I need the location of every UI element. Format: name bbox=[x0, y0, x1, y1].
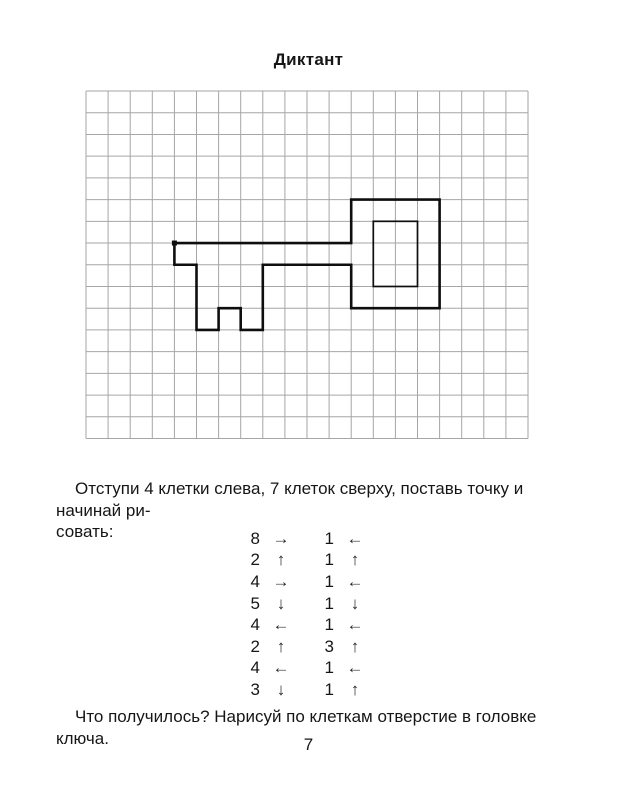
arrow-left-icon: ← bbox=[345, 658, 365, 678]
step-count: 1 bbox=[320, 680, 334, 700]
step-count: 3 bbox=[320, 637, 334, 657]
arrow-down-icon: ↓ bbox=[271, 594, 291, 614]
dictation-step: 4→ bbox=[246, 571, 291, 593]
dictation-step: 8→ bbox=[246, 528, 291, 550]
arrow-up-icon: ↑ bbox=[271, 550, 291, 570]
step-count: 5 bbox=[246, 594, 260, 614]
start-dot bbox=[172, 241, 177, 246]
step-count: 1 bbox=[320, 594, 334, 614]
step-count: 8 bbox=[246, 529, 260, 549]
arrow-left-icon: ← bbox=[345, 615, 365, 635]
dictation-steps-left: 8→2↑4→5↓4←2↑4←3↓ bbox=[246, 528, 291, 701]
dictation-step: 1↓ bbox=[320, 593, 365, 615]
dictation-step: 1← bbox=[320, 571, 365, 593]
step-count: 4 bbox=[246, 658, 260, 678]
arrow-left-icon: ← bbox=[271, 658, 291, 678]
arrow-up-icon: ↑ bbox=[345, 637, 365, 657]
instruction-line-1: Отступи 4 клетки слева, 7 клеток сверху,… bbox=[56, 478, 570, 521]
dictation-step: 4← bbox=[246, 614, 291, 636]
step-count: 2 bbox=[246, 550, 260, 570]
step-count: 4 bbox=[246, 572, 260, 592]
arrow-left-icon: ← bbox=[345, 572, 365, 592]
arrow-up-icon: ↑ bbox=[271, 637, 291, 657]
dictation-step: 2↑ bbox=[246, 636, 291, 658]
step-count: 1 bbox=[320, 550, 334, 570]
dictation-step: 3↑ bbox=[320, 636, 365, 658]
dictation-step: 4← bbox=[246, 658, 291, 680]
arrow-up-icon: ↑ bbox=[345, 680, 365, 700]
dictation-step: 3↓ bbox=[246, 679, 291, 701]
page-number: 7 bbox=[56, 735, 561, 755]
arrow-up-icon: ↑ bbox=[345, 550, 365, 570]
workbook-page: Диктант Отступи 4 клетки слева, 7 клеток… bbox=[0, 0, 627, 800]
step-count: 1 bbox=[320, 529, 334, 549]
page-title: Диктант bbox=[56, 50, 561, 70]
instruction-line-2: совать: bbox=[56, 521, 570, 543]
arrow-left-icon: ← bbox=[345, 529, 365, 549]
step-count: 1 bbox=[320, 572, 334, 592]
dictation-step: 1↑ bbox=[320, 550, 365, 572]
step-count: 2 bbox=[246, 637, 260, 657]
step-count: 4 bbox=[246, 615, 260, 635]
dictation-step: 2↑ bbox=[246, 550, 291, 572]
arrow-left-icon: ← bbox=[271, 615, 291, 635]
dictation-step: 5↓ bbox=[246, 593, 291, 615]
step-count: 1 bbox=[320, 658, 334, 678]
arrow-right-icon: → bbox=[271, 529, 291, 549]
arrow-right-icon: → bbox=[271, 572, 291, 592]
dictation-steps-right: 1←1↑1←1↓1←3↑1←1↑ bbox=[320, 528, 365, 701]
arrow-down-icon: ↓ bbox=[345, 594, 365, 614]
step-count: 1 bbox=[320, 615, 334, 635]
step-count: 3 bbox=[246, 680, 260, 700]
dictation-step: 1← bbox=[320, 528, 365, 550]
dictation-step: 1← bbox=[320, 614, 365, 636]
instruction-paragraph: Отступи 4 клетки слева, 7 клеток сверху,… bbox=[56, 478, 570, 543]
dictation-step: 1← bbox=[320, 658, 365, 680]
dictation-step: 1↑ bbox=[320, 679, 365, 701]
dictation-grid bbox=[84, 89, 530, 441]
arrow-down-icon: ↓ bbox=[271, 680, 291, 700]
